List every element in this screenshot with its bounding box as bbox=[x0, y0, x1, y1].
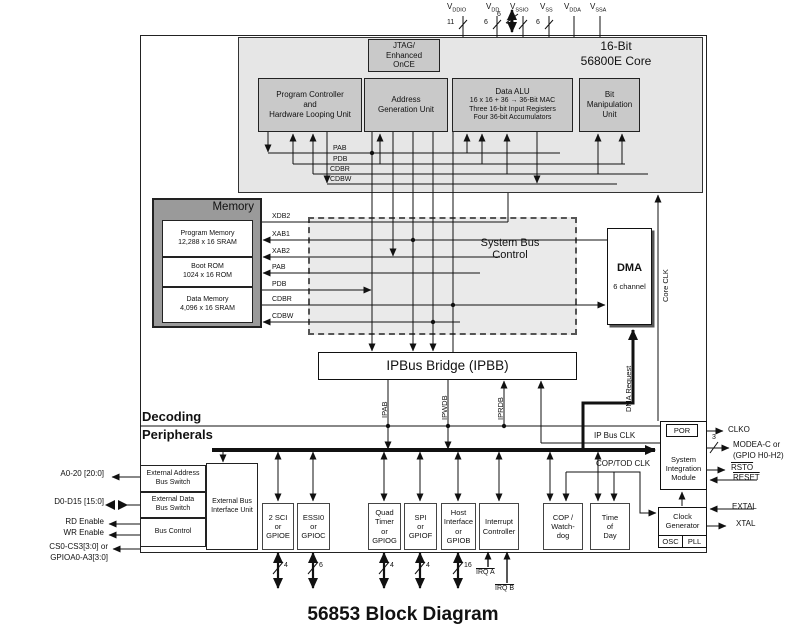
power-pin-vssa: VSSA bbox=[590, 3, 606, 14]
mem-bus-xab2: XAB2 bbox=[272, 248, 290, 256]
ipab-label: IPAB bbox=[380, 401, 389, 418]
dma-request-label: DMA Request bbox=[624, 365, 633, 412]
boot-rom-box: Boot ROM 1024 x 16 ROM bbox=[162, 257, 253, 287]
pin-count-host: 16 bbox=[464, 562, 472, 570]
data-bus-label: D0-D15 [15:0] bbox=[4, 498, 104, 507]
ipwdb-label: IPWDB bbox=[440, 395, 449, 420]
bottom-pin-arrows bbox=[273, 552, 507, 588]
core-bus-cdbr: CDBR bbox=[330, 166, 350, 174]
rd-enable-label: RD Enable bbox=[4, 518, 104, 527]
spi-gpiof-box: SPI or GPIOF bbox=[404, 503, 437, 550]
pll-box: PLL bbox=[682, 535, 707, 548]
power-pin-vdda: VDDA bbox=[564, 3, 581, 14]
irqa-label: IRQ A bbox=[476, 569, 495, 577]
irqb-label: IRQ B bbox=[495, 585, 514, 593]
cs-label-line2: GPIOA0-A3[3:0] bbox=[4, 554, 108, 563]
cs-label-line1: CS0-CS3[3:0] or bbox=[4, 543, 108, 552]
iprdb-label: IPRDB bbox=[496, 397, 505, 420]
power-pin-count-3: 6 bbox=[536, 19, 540, 27]
power-pin-count-1: 6 bbox=[484, 19, 488, 27]
cop-tod-clk-label: COP/TOD CLK bbox=[596, 460, 650, 469]
mem-bus-cdbw: CDBW bbox=[272, 313, 293, 321]
junction-dots bbox=[370, 151, 506, 428]
block-diagram: IPAB IPWDB IPRDB Core CLK DMA Request VD… bbox=[0, 0, 806, 641]
external-data-bus-switch-box: External Data Bus Switch bbox=[140, 492, 206, 518]
pin-count-essi0: 6 bbox=[319, 562, 323, 570]
peripherals-label: Peripherals bbox=[142, 428, 213, 442]
core-bus-cdbw: CDBW bbox=[330, 176, 351, 184]
extal-label: EXTAL bbox=[732, 503, 757, 512]
jtag-once-box: JTAG/ Enhanced OnCE bbox=[368, 39, 440, 72]
core-title-line1: 16-Bit bbox=[551, 40, 681, 53]
sci-gpioe-box: 2 SCI or GPIOE bbox=[262, 503, 294, 550]
essi0-gpioc-box: ESSI0 or GPIOC bbox=[297, 503, 330, 550]
pin-count-sci: 4 bbox=[284, 562, 288, 570]
bus-control-box: Bus Control bbox=[140, 518, 206, 547]
data-memory-box: Data Memory 4,096 x 16 SRAM bbox=[162, 287, 253, 323]
core-clk-label: Core CLK bbox=[661, 269, 670, 302]
memory-title: Memory bbox=[156, 201, 254, 214]
cop-watchdog-box: COP / Watch- dog bbox=[543, 503, 583, 550]
clko-label: CLKO bbox=[728, 426, 750, 435]
addr-bus-label: A0-20 [20:0] bbox=[4, 470, 104, 479]
data-alu-box: Data ALU 16 x 16 + 36 → 36-Bit MAC Three… bbox=[452, 78, 573, 132]
decoding-label: Decoding bbox=[142, 410, 201, 424]
mem-bus-pab: PAB bbox=[272, 264, 286, 272]
mode-label-line2: (GPIO H0-H2) bbox=[733, 452, 784, 461]
external-bus-interface-unit-box: External Bus Interface Unit bbox=[206, 463, 258, 550]
dma-box: DMA 6 channel bbox=[607, 228, 652, 325]
power-pin-vss: VSS bbox=[540, 3, 553, 14]
por-box: POR bbox=[666, 424, 698, 437]
wr-enable-label: WR Enable bbox=[4, 529, 104, 538]
address-generation-unit-box: Address Generation Unit bbox=[364, 78, 448, 132]
osc-box: OSC bbox=[658, 535, 683, 548]
reset-label: RESET bbox=[733, 474, 760, 483]
bit-manipulation-unit-box: Bit Manipulation Unit bbox=[579, 78, 640, 132]
jtag-bus-width: 6 bbox=[497, 11, 501, 19]
pin-count-spi: 4 bbox=[426, 562, 430, 570]
power-pin-count-0: 11 bbox=[447, 19, 454, 27]
diagram-title: 56853 Block Diagram bbox=[0, 605, 806, 626]
mem-bus-xab1: XAB1 bbox=[272, 231, 290, 239]
program-memory-box: Program Memory 12,288 x 16 SRAM bbox=[162, 220, 253, 257]
mem-bus-pdb: PDB bbox=[272, 281, 286, 289]
program-controller-box: Program Controller and Hardware Looping … bbox=[258, 78, 362, 132]
xtal-label: XTAL bbox=[736, 520, 755, 529]
host-interface-gpiob-box: Host Interface or GPIOB bbox=[441, 503, 476, 550]
pin-count-quad-timer: 4 bbox=[390, 562, 394, 570]
sbc-label: System Bus Control bbox=[450, 237, 570, 261]
power-pin-vssio: VSSIO bbox=[510, 3, 529, 14]
left-signal-arrows bbox=[105, 477, 140, 549]
quad-timer-gpiog-box: Quad Timer or GPIOG bbox=[368, 503, 401, 550]
external-address-bus-switch-box: External Address Bus Switch bbox=[140, 465, 206, 492]
interrupt-controller-box: Interrupt Controller bbox=[479, 503, 519, 550]
power-pin-lines bbox=[459, 16, 600, 37]
rsto-label: RSTO bbox=[731, 464, 753, 473]
core-bus-pdb: PDB bbox=[333, 156, 347, 164]
core-bus-pab: PAB bbox=[333, 145, 347, 153]
power-pin-vddio: VDDIO bbox=[447, 3, 466, 14]
mode-width-label: 3 bbox=[712, 434, 716, 442]
ipbb-box: IPBus Bridge (IPBB) bbox=[318, 352, 577, 380]
ip-bus-clk-label: IP Bus CLK bbox=[594, 432, 635, 441]
mem-bus-xdb2: XDB2 bbox=[272, 213, 290, 221]
core-title-line2: 56800E Core bbox=[551, 55, 681, 68]
time-of-day-box: Time of Day bbox=[590, 503, 630, 550]
mem-bus-cdbr: CDBR bbox=[272, 296, 292, 304]
mode-label-line1: MODEA-C or bbox=[733, 441, 780, 450]
power-pin-count-2: 10 bbox=[506, 19, 514, 27]
